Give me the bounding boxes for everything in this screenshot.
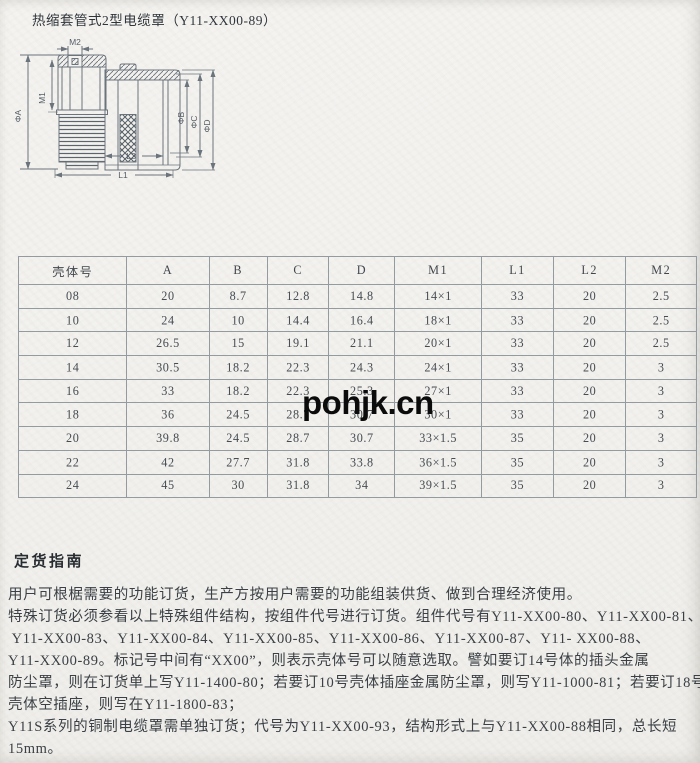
- table-cell: 20: [553, 285, 626, 309]
- table-cell: 12: [19, 332, 127, 356]
- table-header-cell: M1: [395, 257, 482, 285]
- guide-line: Y11S系列的铜制电缆罩需单独订货；代号为Y11-XX00-93，结构形式上与Y…: [8, 716, 698, 738]
- table-cell: 36×1.5: [395, 451, 482, 475]
- table-cell: 33: [482, 332, 554, 356]
- table-row: 10241014.416.418×133202.5: [19, 308, 697, 332]
- table-cell: 20: [553, 332, 626, 356]
- table-header-cell: M2: [626, 257, 697, 285]
- dim-label-phi-b: ΦB: [176, 111, 186, 124]
- table-cell: 2.5: [626, 285, 697, 309]
- table-cell: 33: [482, 356, 554, 380]
- table-cell: 12.8: [267, 285, 329, 309]
- table-cell: 28.7: [267, 427, 329, 451]
- table-header-cell: D: [329, 257, 395, 285]
- table-cell: 8.7: [209, 285, 267, 309]
- watermark-text: pohjk.cn: [302, 386, 434, 419]
- table-cell: 14.8: [329, 285, 395, 309]
- dim-label-m2: M2: [69, 37, 81, 47]
- table-cell: 20: [553, 309, 626, 333]
- table-cell: 24: [127, 309, 209, 333]
- table-cell: 3: [626, 451, 697, 475]
- table-cell: 39×1.5: [395, 474, 482, 498]
- table-cell: 14.4: [267, 309, 329, 333]
- table-cell: 26.5: [127, 332, 209, 356]
- table-cell: 33.8: [329, 451, 395, 475]
- table-cell: 19.1: [267, 332, 329, 356]
- guide-line: 15mm。: [8, 738, 698, 760]
- table-cell: 20: [19, 427, 127, 451]
- table-cell: 18: [19, 403, 127, 427]
- table-cell: 20: [553, 403, 626, 427]
- table-cell: 20: [553, 379, 626, 403]
- table-row: 24453031.83439×1.535203: [19, 474, 697, 498]
- table-cell: 35: [482, 474, 554, 498]
- guide-line: 用户可根椐需要的功能订货，生产方按用户需要的功能组装供货、做到合理经济使用。: [8, 584, 698, 606]
- table-row: 08208.712.814.814×133202.5: [19, 285, 697, 309]
- table-cell: 10: [19, 309, 127, 333]
- table-header-cell: L2: [553, 257, 626, 285]
- guide-line: 防尘罩，则在订货单上写Y11-1400-80；若要订10号壳体插座金属防尘罩，则…: [8, 672, 698, 694]
- table-cell: 20: [127, 285, 209, 309]
- table-cell: 39.8: [127, 427, 209, 451]
- table-cell: 35: [482, 427, 554, 451]
- table-cell: 33: [482, 285, 554, 309]
- table-cell: 21.1: [329, 332, 395, 356]
- table-cell: 20: [553, 474, 626, 498]
- dim-label-phi-d: ΦD: [202, 120, 212, 133]
- guide-line: Y11-XX00-83、Y11-XX00-84、Y11-XX00-85、Y11-…: [8, 628, 698, 650]
- table-row: 1430.518.222.324.324×133203: [19, 356, 697, 380]
- table-cell: 24.3: [329, 356, 395, 380]
- guide-line: 壳体空插座，则写在Y11-1800-83；: [8, 694, 698, 716]
- table-cell: 24: [19, 474, 127, 498]
- table-header-cell: C: [267, 257, 329, 285]
- dim-label-phi-c: ΦC: [189, 116, 199, 129]
- table-cell: 20: [553, 451, 626, 475]
- table-cell: 33: [482, 379, 554, 403]
- table-cell: 08: [19, 285, 127, 309]
- table-cell: 30.7: [329, 427, 395, 451]
- table-cell: 16: [19, 379, 127, 403]
- table-cell: 34: [329, 474, 395, 498]
- table-header-cell: L1: [482, 257, 554, 285]
- table-header-cell: A: [127, 257, 209, 285]
- table-cell: 18×1: [395, 309, 482, 333]
- table-cell: 33: [482, 309, 554, 333]
- table-cell: 30: [209, 474, 267, 498]
- table-cell: 31.8: [267, 451, 329, 475]
- guide-section-heading: 定货指南: [14, 550, 84, 571]
- dim-label-m1: M1: [37, 92, 47, 104]
- table-cell: 24.5: [209, 427, 267, 451]
- table-cell: 20: [553, 427, 626, 451]
- table-cell: 24.5: [209, 403, 267, 427]
- table-cell: 18.2: [209, 379, 267, 403]
- table-cell: 45: [127, 474, 209, 498]
- table-cell: 3: [626, 379, 697, 403]
- table-cell: 31.8: [267, 474, 329, 498]
- table-cell: 30.5: [127, 356, 209, 380]
- table-row: 224227.731.833.836×1.535203: [19, 450, 697, 474]
- table-header-cell: B: [209, 257, 267, 285]
- table-cell: 20×1: [395, 332, 482, 356]
- table-cell: 3: [626, 427, 697, 451]
- table-header-cell: 壳体号: [19, 257, 127, 285]
- table-cell: 36: [127, 403, 209, 427]
- guide-lines: 用户可根椐需要的功能订货，生产方按用户需要的功能组装供货、做到合理经济使用。特殊…: [8, 584, 698, 760]
- dim-label-l2: L2: [126, 151, 136, 161]
- table-cell: 3: [626, 474, 697, 498]
- dim-label-phi-a: ΦA: [13, 109, 23, 122]
- table-cell: 14: [19, 356, 127, 380]
- table-cell: 22: [19, 451, 127, 475]
- table-cell: 33×1.5: [395, 427, 482, 451]
- table-row: 1226.51519.121.120×133202.5: [19, 332, 697, 356]
- guide-line: Y11-XX00-89。标记号中间有“XX00”，则表示壳体号可以随意选取。譬如…: [8, 650, 698, 672]
- page-title: 热缩套管式2型电缆罩（Y11-XX00-89）: [32, 9, 277, 29]
- table-row: 2039.824.528.730.733×1.535203: [19, 427, 697, 451]
- table-cell: 10: [209, 309, 267, 333]
- table-cell: 15: [209, 332, 267, 356]
- document-page: 热缩套管式2型电缆罩（Y11-XX00-89）: [0, 0, 700, 763]
- table-cell: 3: [626, 403, 697, 427]
- dimension-table: 壳体号ABCDM1L1L2M2 08208.712.814.814×133202…: [18, 256, 697, 498]
- table-cell: 14×1: [395, 285, 482, 309]
- table-cell: 2.5: [626, 332, 697, 356]
- table-cell: 22.3: [267, 356, 329, 380]
- table-cell: 20: [553, 356, 626, 380]
- table-cell: 33: [127, 379, 209, 403]
- table-cell: 3: [626, 356, 697, 380]
- table-cell: 18.2: [209, 356, 267, 380]
- technical-drawing: M2 ΦA M1 ΦB ΦC ΦD L2 L1: [8, 36, 243, 186]
- table-cell: 42: [127, 451, 209, 475]
- table-cell: 35: [482, 451, 554, 475]
- table-header-row: 壳体号ABCDM1L1L2M2: [19, 257, 697, 285]
- table-cell: 24×1: [395, 356, 482, 380]
- table-cell: 2.5: [626, 309, 697, 333]
- table-cell: 33: [482, 403, 554, 427]
- guide-line: 特殊订货必须参看以上特殊组件结构，按组件代号进行订货。组件代号有Y11-XX00…: [8, 606, 698, 628]
- dim-label-l1: L1: [118, 170, 128, 180]
- table-cell: 16.4: [329, 309, 395, 333]
- table-cell: 27.7: [209, 451, 267, 475]
